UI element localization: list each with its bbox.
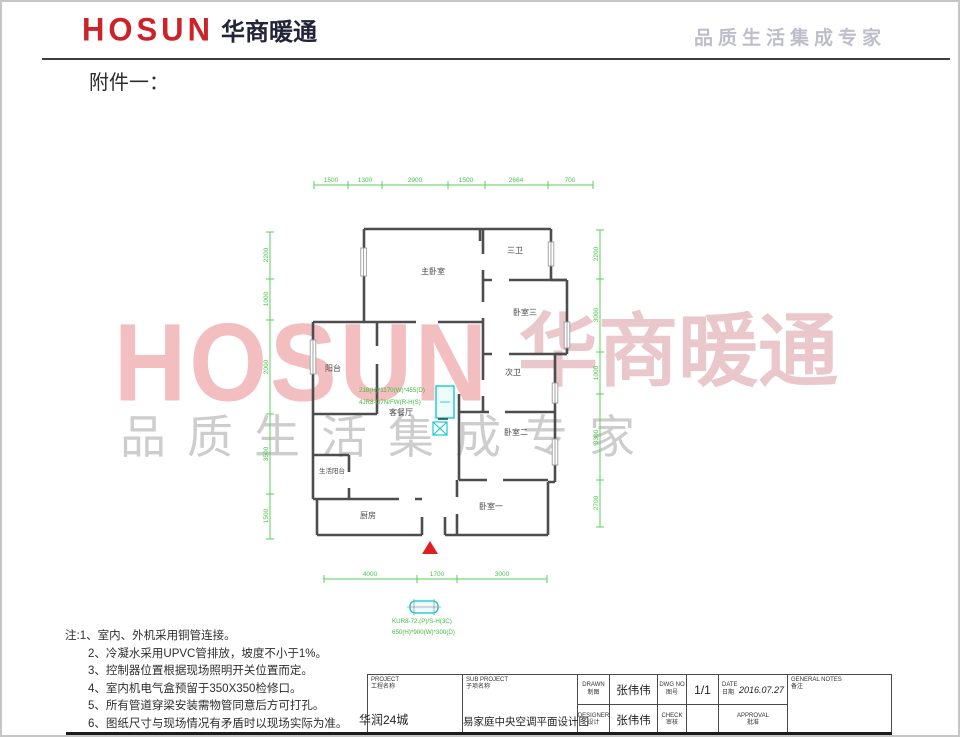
subproject-header: SUB PROJECT 子项名称 (466, 677, 508, 691)
bottom-border-line (66, 732, 892, 735)
dim-label: 4000 (363, 571, 378, 578)
titleblock-notes-cell: GENERAL NOTES 备注 (788, 675, 893, 735)
date-value: 2016.07.27 (739, 685, 784, 695)
titleblock-date-cell: DATE 日期 2016.07.27 (719, 675, 788, 705)
dim-label: 2000 (263, 359, 270, 374)
room-label-service-balcony: 生活阳台 (319, 466, 345, 475)
titleblock-designer-cell: DESIGNER 设计 (578, 705, 610, 735)
indoor-unit-symbol (433, 386, 454, 435)
indoor-unit-spec-line: 218(H)*1170(W)*455(D) (359, 387, 425, 394)
dim-label: 1300 (358, 177, 373, 184)
dim-label: 2200 (593, 246, 600, 261)
dwgno-label: DWG NO 图号 (658, 675, 686, 704)
generalnotes-header: GENERAL NOTES 备注 (791, 677, 842, 691)
drawn-label-cn: 制图 (587, 690, 599, 698)
titleblock-subproject-cell: SUB PROJECT 子项名称 易家庭中央空调平面设计图 (463, 675, 578, 735)
outdoor-unit-spec-line: 650(H)*900(W)*300(D) (392, 629, 455, 636)
dim-label: 2700 (593, 495, 600, 510)
room-label-bedroom-1: 卧室一 (479, 501, 503, 511)
header-divider (42, 58, 950, 60)
dim-label: 3300 (593, 429, 600, 444)
dwgno-label-en: DWG NO (659, 682, 684, 690)
approval-label: APPROVAL 批准 (719, 705, 787, 735)
note-line: 2、冷凝水采用UPVC管排放，坡度不小于1%。 (88, 646, 347, 664)
titleblock-dwgno-cell: DWG NO 图号 (658, 675, 687, 705)
floor-plan-drawing: 1500 1300 2900 1500 2664 700 2200 1000 2… (2, 2, 960, 737)
room-label-kitchen: 厨房 (360, 510, 376, 520)
designer-label-cn: 设计 (587, 720, 599, 728)
note-line: 4、室内机电气盒预留于350X350检修口。 (88, 681, 347, 699)
room-label-balcony: 阳台 (325, 363, 341, 373)
project-label-cn: 工程名称 (371, 684, 399, 691)
indoor-unit-spec-line: 4JR8-G7N/FW(R-H(S) (359, 399, 421, 406)
dim-label: 1000 (263, 291, 270, 306)
approval-label-cn: 批准 (747, 720, 759, 728)
note-line: 注:1、室内、外机采用铜管连接。 (65, 628, 347, 646)
note-line: 6、图纸尺寸与现场情况有矛盾时以现场实际为准。 (88, 716, 347, 734)
drawn-value: 张伟伟 (610, 675, 657, 704)
date-label-en: DATE (722, 682, 738, 690)
title-block: PROJECT 工程名称 华润24城 SUB PROJECT 子项名称 易家庭中… (367, 674, 892, 734)
titleblock-drawn-cell: DRAWN 制图 (578, 675, 610, 705)
subproject-value: 易家庭中央空调平面设计图 (463, 714, 589, 729)
generalnotes-label-en: GENERAL NOTES (791, 677, 842, 684)
titleblock-drawn-value-cell: 张伟伟 (610, 675, 658, 705)
indoor-unit-spec: 218(H)*1170(W)*455(D) 4JR8-G7N/FW(R-H(S) (359, 387, 425, 406)
dim-label: 700 (565, 177, 576, 184)
logo-chinese-name: 华商暖通 (221, 21, 317, 45)
dim-label: 1500 (324, 177, 339, 184)
project-label-en: PROJECT (371, 677, 399, 684)
room-label-bath-3: 三卫 (507, 246, 523, 255)
designer-value: 张伟伟 (610, 705, 657, 735)
date-label: DATE 日期 (722, 682, 738, 697)
company-logo: HOSUN 华商暖通 (82, 14, 317, 45)
room-label-bedroom-3: 卧室三 (513, 307, 537, 317)
note-line: 5、所有管道穿梁安装需物管同意后方可打孔。 (88, 698, 347, 716)
outdoor-unit-spec-line: KUR8-72.(P)/S-H(3C) (392, 618, 452, 625)
dim-label: 2900 (408, 177, 423, 184)
dim-label: 2664 (509, 177, 524, 184)
approval-label-en: APPROVAL (737, 713, 769, 721)
project-value: 华润24城 (359, 711, 408, 728)
dim-label: 3000 (593, 307, 600, 322)
drawn-label: DRAWN 制图 (578, 675, 609, 704)
dwgno-label-cn: 图号 (666, 690, 678, 698)
check-label: CHECK 审核 (658, 705, 686, 735)
entrance-marker-triangle (422, 541, 438, 554)
room-label-bath-2: 次卫 (505, 367, 521, 377)
logo-wordmark: HOSUN (82, 13, 214, 46)
drawn-label-en: DRAWN (582, 682, 604, 690)
room-label-bedroom-2: 卧室二 (504, 427, 528, 437)
room-label-master-bedroom: 主卧室 (421, 266, 445, 276)
attachment-label: 附件一： (89, 66, 169, 95)
titleblock-project-cell: PROJECT 工程名称 华润24城 (368, 675, 463, 735)
dim-label: 3500 (263, 446, 270, 461)
dim-label: 1700 (430, 571, 445, 578)
outdoor-unit-symbol (407, 599, 441, 615)
room-label-living-dining: 客餐厅 (389, 407, 413, 417)
dim-label: 1000 (593, 365, 600, 380)
check-label-en: CHECK (661, 713, 682, 721)
titleblock-check-cell: CHECK 审核 (658, 705, 687, 735)
dim-label: 3000 (495, 571, 510, 578)
date-label-cn: 日期 (722, 690, 738, 698)
subproject-label-en: SUB PROJECT (466, 677, 508, 684)
titleblock-designer-value-cell: 张伟伟 (610, 705, 658, 735)
titleblock-check-value-cell (687, 705, 719, 735)
titleblock-approval-cell: APPROVAL 批准 (719, 705, 788, 735)
designer-label-en: DESIGNER (578, 713, 609, 721)
designer-label: DESIGNER 设计 (578, 705, 609, 735)
outdoor-unit-spec: KUR8-72.(P)/S-H(3C) 650(H)*900(W)*300(D) (392, 618, 455, 636)
generalnotes-label-cn: 备注 (791, 684, 842, 691)
subproject-label-cn: 子项名称 (466, 684, 508, 691)
project-header: PROJECT 工程名称 (371, 677, 399, 691)
check-value (687, 705, 718, 735)
dwgno-value: 1/1 (687, 675, 718, 704)
note-line: 3、控制器位置根据现场照明开关位置而定。 (88, 663, 347, 681)
document-page: HOSUN 华商暖通 品质生活集成专家 附件一： HOSUN 华商暖通 品质生活… (0, 0, 960, 737)
header-tagline: 品质生活集成专家 (694, 23, 886, 50)
general-notes: 注:1、室内、外机采用铜管连接。 2、冷凝水采用UPVC管排放，坡度不小于1%。… (65, 628, 347, 733)
titleblock-dwgno-value-cell: 1/1 (687, 675, 719, 705)
check-label-cn: 审核 (666, 720, 678, 728)
dim-label: 1500 (263, 508, 270, 523)
dim-label: 2200 (263, 247, 270, 262)
dim-label: 1500 (459, 177, 474, 184)
